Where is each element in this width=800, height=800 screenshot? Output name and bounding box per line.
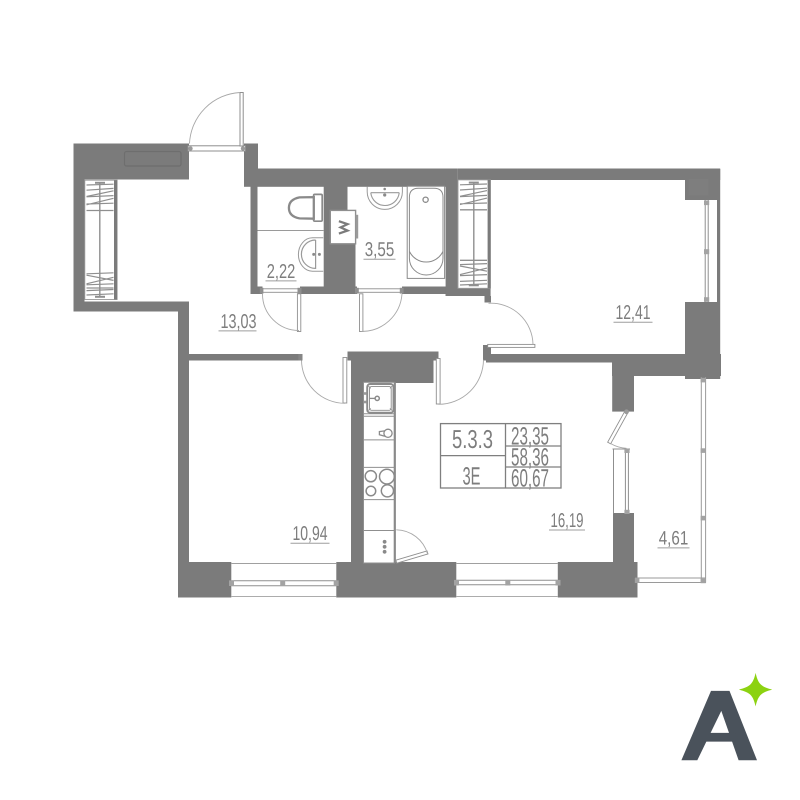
svg-text:60,67: 60,67 (511, 465, 549, 493)
svg-text:16,19: 16,19 (551, 510, 584, 532)
svg-text:10,94: 10,94 (293, 523, 328, 545)
svg-text:3Е: 3Е (463, 463, 481, 491)
svg-text:2,22: 2,22 (267, 261, 296, 283)
svg-text:5.3.3: 5.3.3 (452, 424, 493, 454)
svg-text:4,61: 4,61 (659, 528, 689, 550)
svg-text:3,55: 3,55 (365, 239, 395, 261)
svg-text:13,03: 13,03 (221, 311, 257, 333)
svg-text:12,41: 12,41 (616, 302, 651, 324)
